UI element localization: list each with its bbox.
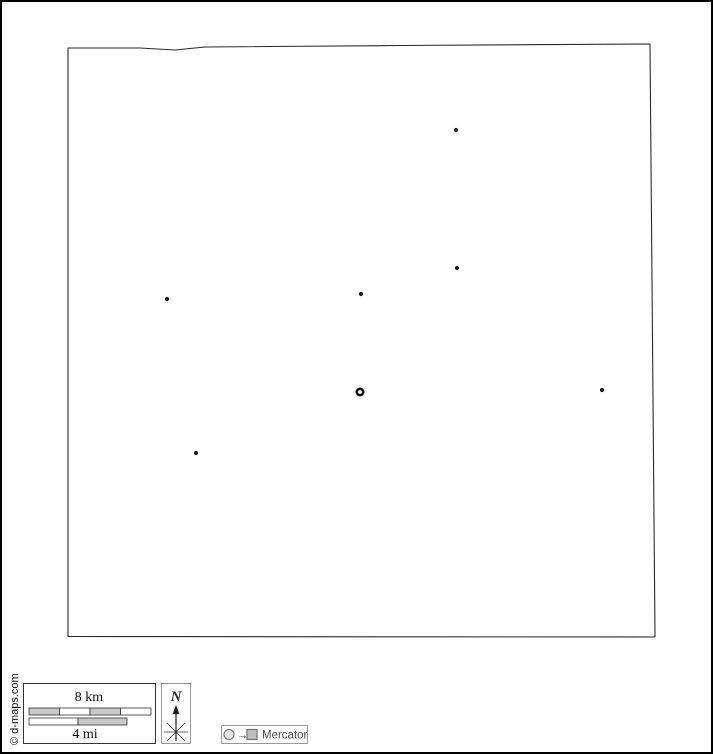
north-label: N bbox=[170, 689, 183, 705]
city-dot bbox=[165, 297, 169, 301]
scale-km-label: 8 km bbox=[75, 690, 104, 705]
map-page: 8 km 4 mi N → Mercator © d-m bbox=[0, 0, 713, 754]
scale-bar-segment bbox=[29, 708, 60, 715]
scale-bar-segment bbox=[60, 708, 91, 715]
scale-bar-segment bbox=[121, 708, 152, 715]
scale-bar-box: 8 km 4 mi bbox=[24, 684, 156, 744]
globe-circle-icon bbox=[224, 730, 234, 740]
copyright-credit: © d-maps.com bbox=[9, 673, 21, 745]
projection-label: Mercator bbox=[262, 730, 308, 742]
scale-bar-segment bbox=[90, 708, 121, 715]
scale-bar-segment bbox=[29, 718, 78, 725]
projected-square-icon bbox=[247, 730, 257, 740]
city-dot bbox=[359, 292, 363, 296]
scale-bar-segment bbox=[78, 718, 127, 725]
scale-mi-bar bbox=[29, 718, 127, 725]
city-dot bbox=[600, 388, 604, 392]
scale-km-bar bbox=[29, 708, 151, 715]
north-arrow-box: N bbox=[162, 684, 191, 744]
projection-box: → Mercator bbox=[222, 726, 308, 744]
city-dot bbox=[194, 451, 198, 455]
city-dot bbox=[455, 266, 459, 270]
capital-ring-marker bbox=[357, 389, 363, 395]
map-outline bbox=[68, 44, 655, 637]
scale-mi-label: 4 mi bbox=[72, 727, 97, 742]
map-figure: 8 km 4 mi N → Mercator © d-m bbox=[0, 0, 713, 754]
city-dot bbox=[454, 128, 458, 132]
